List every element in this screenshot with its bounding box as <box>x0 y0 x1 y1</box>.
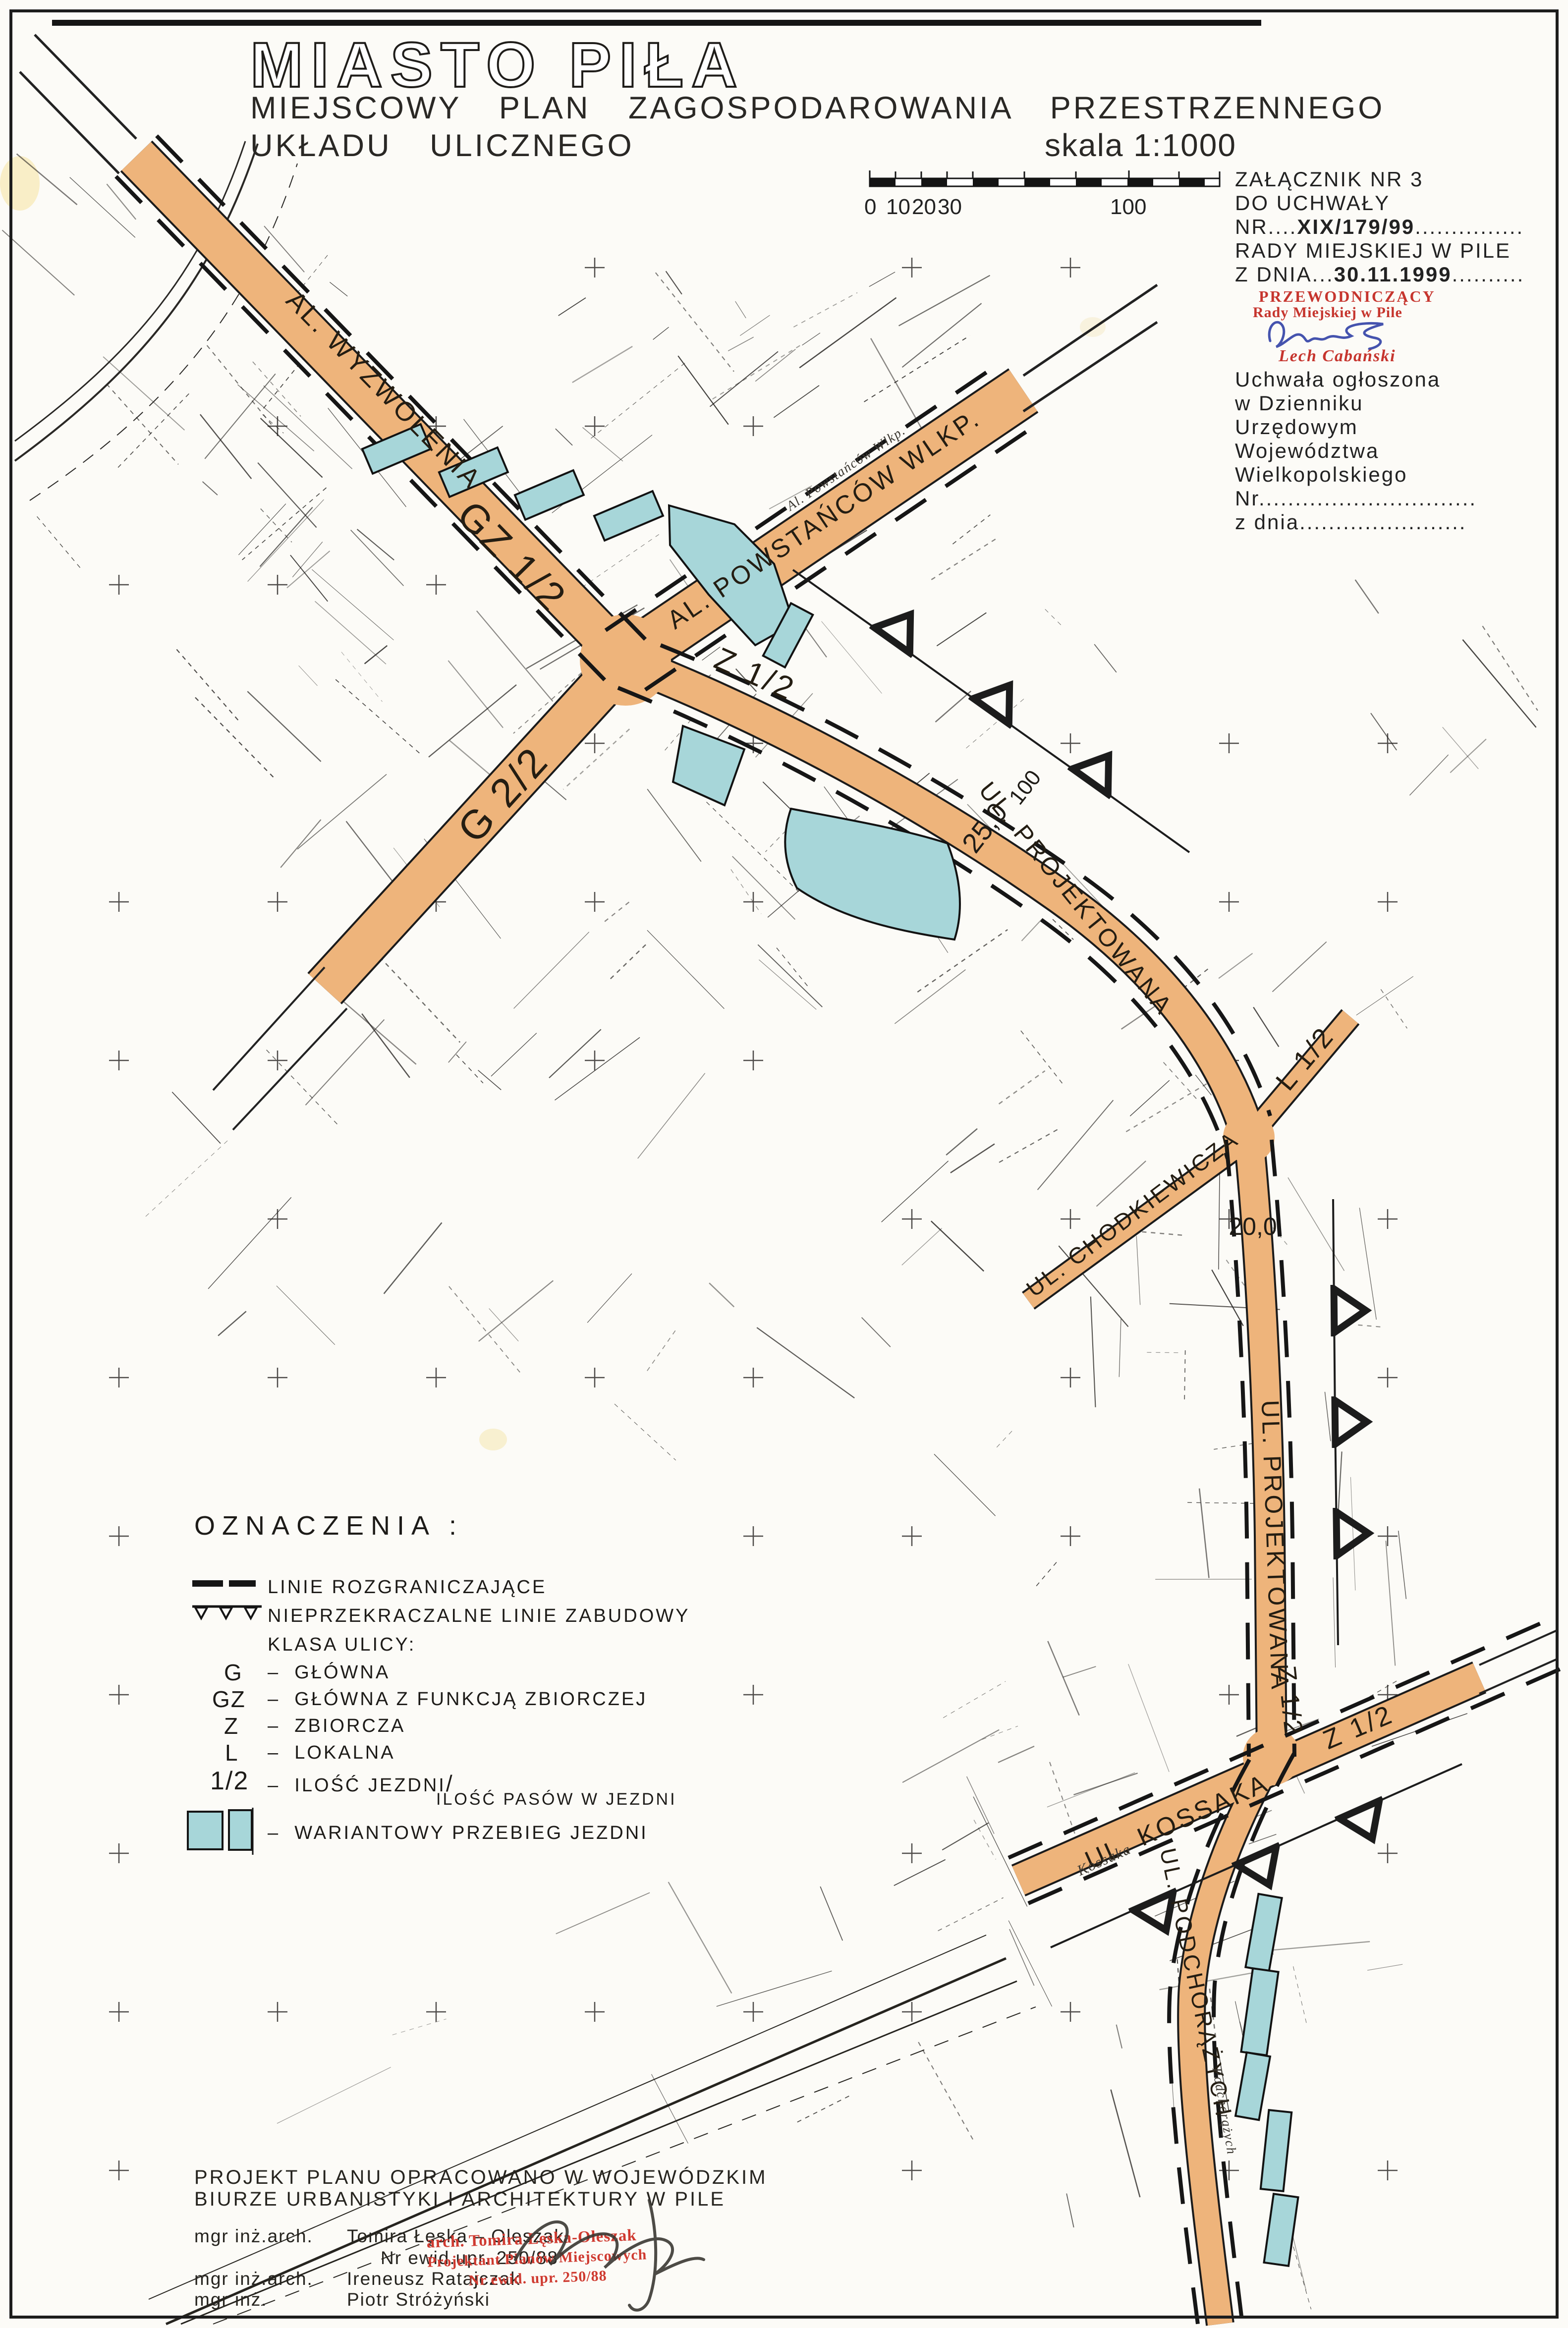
paper-stain <box>479 1429 507 1450</box>
attachment-line1: ZAŁĄCZNIK NR 3 <box>1235 167 1552 191</box>
chairman-stamp-line1: PRZEWODNICZĄCY <box>1259 287 1436 306</box>
credits-name3: Piotr Stróżyński <box>347 2289 490 2310</box>
legend-val-z: – ZBIORCZA <box>268 1716 405 1737</box>
publication-line4: Województwa <box>1235 439 1552 463</box>
chairman-signature <box>1261 312 1425 352</box>
legend-symbol-lines <box>192 1579 257 1589</box>
legend-key-z: Z <box>224 1713 239 1739</box>
legend-symbol-variant <box>186 1808 261 1855</box>
credits-role2: mgr inż.arch. <box>194 2269 313 2289</box>
publication-line6: Nr.............................. <box>1235 487 1552 510</box>
legend-val-frac2: ILOŚĆ PASÓW W JEZDNI <box>436 1790 677 1809</box>
credits-role1: mgr inż.arch. <box>194 2226 313 2247</box>
legend-val-frac: – ILOŚĆ JEZDNI/ <box>268 1770 454 1797</box>
designer-signature <box>486 2170 714 2319</box>
dim-label-20: 20,0 <box>1229 1213 1277 1240</box>
scale-tick-20: 20 <box>912 195 936 219</box>
page-subtitle-line1: MIEJSCOWY PLAN ZAGOSPODAROWANIA PRZESTRZ… <box>250 90 1385 126</box>
publication-line3: Urzędowym <box>1235 415 1552 439</box>
scale-tick-30: 30 <box>938 195 962 219</box>
publication-note: Uchwała ogłoszona w Dzienniku Urzędowym … <box>1235 368 1552 534</box>
road-label-chodkiewicza: UL. CHODKIEWICZA <box>1021 1125 1243 1302</box>
attachment-line4: RADY MIEJSKIEJ W PILE <box>1235 239 1552 263</box>
legend-val-variant: – WARIANTOWY PRZEBIEG JEZDNI <box>268 1823 648 1844</box>
legend-key-l: L <box>225 1739 239 1766</box>
publication-line5: Wielkopolskiego <box>1235 463 1552 487</box>
attachment-line2: DO UCHWAŁY <box>1235 191 1552 215</box>
legend-val-l: – LOKALNA <box>268 1742 395 1764</box>
attachment-line5: Z DNIA...30.11.1999.......... <box>1235 263 1552 286</box>
legend-item-lines: LINIE ROZGRANICZAJĄCE <box>268 1577 547 1598</box>
legend-key-g: G <box>224 1659 243 1686</box>
publication-line7: z dnia....................... <box>1235 510 1552 534</box>
legend-klasa-heading: KLASA ULICY: <box>268 1634 416 1656</box>
chairman-name: Lech Cabański <box>1279 347 1396 366</box>
publication-line1: Uchwała ogłoszona <box>1235 368 1552 391</box>
road-label-projektowana-a: UL. PROJEKTOWANA <box>973 776 1178 1021</box>
plan-sheet: AL. WYZWOLENIA GZ 1/2 G 2/2 AL. POWSTAŃC… <box>0 0 1568 2328</box>
road-label-g22: G 2/2 <box>449 738 558 851</box>
attachment-line3: NR....XIX/179/99............... <box>1235 215 1552 239</box>
legend-val-gz: – GŁÓWNA Z FUNKCJĄ ZBIORCZEJ <box>268 1689 647 1710</box>
legend-heading: OZNACZENIA : <box>194 1510 463 1541</box>
paper-stain <box>0 156 40 211</box>
map-scale-text: skala 1:1000 <box>1045 127 1236 164</box>
attachment-note: ZAŁĄCZNIK NR 3 DO UCHWAŁY NR....XIX/179/… <box>1235 167 1552 286</box>
legend-symbol-building-line <box>192 1605 262 1621</box>
scale-tick-100: 100 <box>1110 195 1146 219</box>
scale-bar: 0 10 20 30 100 <box>862 168 1249 223</box>
legend-item-building: NIEPRZEKRACZALNE LINIE ZABUDOWY <box>268 1606 690 1627</box>
variant-route <box>362 424 1298 2266</box>
publication-line2: w Dzienniku <box>1235 391 1552 415</box>
credits-role3: mgr inż. <box>194 2289 268 2310</box>
scale-tick-0: 0 <box>864 195 876 219</box>
scale-tick-10: 10 <box>886 195 910 219</box>
legend-key-frac: 1/2 <box>210 1766 249 1796</box>
legend-val-g: – GŁÓWNA <box>268 1662 390 1683</box>
page-subtitle-line2: UKŁADU ULICZNEGO <box>250 128 634 164</box>
legend-key-gz: GZ <box>212 1686 246 1713</box>
